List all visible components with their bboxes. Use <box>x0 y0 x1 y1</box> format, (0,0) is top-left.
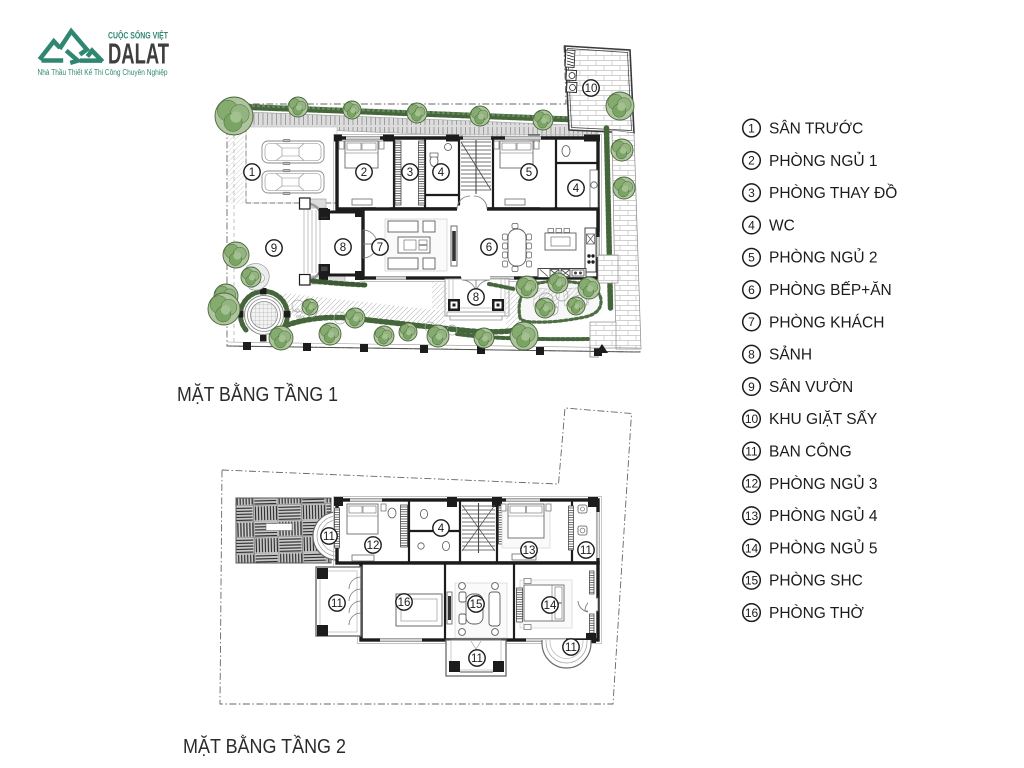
svg-text:PHÒNG NGỦ 1: PHÒNG NGỦ 1 <box>769 152 878 170</box>
svg-text:8: 8 <box>473 292 479 304</box>
svg-text:PHÒNG BẾP+ĂN: PHÒNG BẾP+ĂN <box>769 282 892 299</box>
svg-text:11: 11 <box>580 545 592 557</box>
svg-text:14: 14 <box>544 600 557 612</box>
svg-text:3: 3 <box>748 186 755 200</box>
svg-text:MẶT BẰNG TẦNG 2: MẶT BẰNG TẦNG 2 <box>183 734 346 758</box>
svg-text:16: 16 <box>745 606 759 620</box>
svg-text:2: 2 <box>748 154 755 168</box>
svg-text:15: 15 <box>745 574 759 588</box>
svg-text:Nhà Thầu Thiết Kế Thi Công Chu: Nhà Thầu Thiết Kế Thi Công Chuyên Nghiệp <box>38 68 169 77</box>
svg-text:1: 1 <box>249 167 255 179</box>
svg-text:6: 6 <box>486 242 492 254</box>
svg-text:10: 10 <box>745 412 759 426</box>
svg-text:PHÒNG NGỦ 3: PHÒNG NGỦ 3 <box>769 475 878 493</box>
svg-text:14: 14 <box>745 541 759 555</box>
svg-text:SÂN VƯỜN: SÂN VƯỜN <box>769 379 853 396</box>
svg-text:11: 11 <box>331 598 343 610</box>
svg-text:12: 12 <box>367 540 380 552</box>
svg-text:PHÒNG THỜ: PHÒNG THỜ <box>769 605 864 622</box>
svg-text:4: 4 <box>573 183 580 195</box>
svg-text:11: 11 <box>565 642 577 654</box>
svg-text:4: 4 <box>748 218 755 232</box>
svg-text:PHÒNG NGỦ 4: PHÒNG NGỦ 4 <box>769 507 878 525</box>
svg-text:12: 12 <box>745 477 759 491</box>
svg-text:8: 8 <box>748 348 755 362</box>
svg-text:PHÒNG THAY ĐỒ: PHÒNG THAY ĐỒ <box>769 184 897 202</box>
svg-text:MẶT BẰNG TẦNG 1: MẶT BẰNG TẦNG 1 <box>177 382 338 406</box>
svg-text:6: 6 <box>748 283 755 297</box>
svg-text:4: 4 <box>438 167 445 179</box>
svg-text:5: 5 <box>526 167 532 179</box>
svg-text:PHÒNG SHC: PHÒNG SHC <box>769 573 863 590</box>
svg-text:10: 10 <box>585 83 598 95</box>
svg-text:9: 9 <box>748 380 755 394</box>
svg-text:SẢNH: SẢNH <box>769 347 812 364</box>
svg-text:16: 16 <box>398 597 411 609</box>
svg-text:15: 15 <box>470 599 483 611</box>
svg-text:DALAT: DALAT <box>108 39 169 71</box>
svg-text:11: 11 <box>745 444 758 458</box>
svg-text:PHÒNG NGỦ 2: PHÒNG NGỦ 2 <box>769 249 878 267</box>
svg-text:KHU GIẶT SẤY: KHU GIẶT SẤY <box>769 411 877 428</box>
svg-text:PHÒNG KHÁCH: PHÒNG KHÁCH <box>769 314 884 331</box>
svg-text:11: 11 <box>471 653 483 665</box>
svg-text:PHÒNG NGỦ 5: PHÒNG NGỦ 5 <box>769 539 878 557</box>
svg-text:13: 13 <box>745 509 759 523</box>
svg-text:BAN CÔNG: BAN CÔNG <box>769 444 852 461</box>
svg-text:1: 1 <box>748 121 755 135</box>
svg-text:4: 4 <box>438 523 445 535</box>
svg-text:8: 8 <box>340 242 346 254</box>
svg-text:3: 3 <box>407 167 413 179</box>
svg-text:11: 11 <box>323 531 335 543</box>
svg-text:7: 7 <box>748 315 755 329</box>
svg-text:SÂN TRƯỚC: SÂN TRƯỚC <box>769 121 863 138</box>
svg-text:WC: WC <box>769 217 795 234</box>
svg-text:7: 7 <box>377 242 383 254</box>
svg-text:9: 9 <box>271 243 277 255</box>
svg-text:13: 13 <box>523 545 536 557</box>
svg-text:5: 5 <box>748 251 755 265</box>
svg-text:2: 2 <box>361 167 367 179</box>
